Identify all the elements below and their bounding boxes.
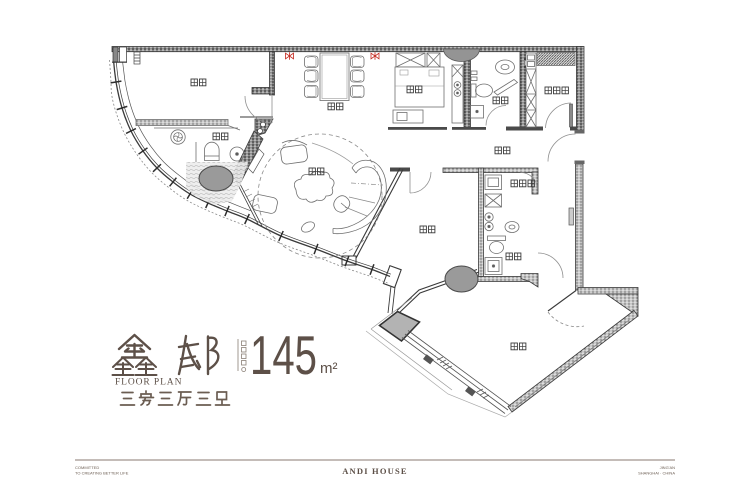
- svg-text:145: 145: [250, 324, 317, 386]
- svg-text:SHANGHAI · CHINA: SHANGHAI · CHINA: [638, 471, 675, 476]
- svg-text:FLOOR PLAN: FLOOR PLAN: [115, 378, 182, 388]
- svg-text:m²: m²: [320, 360, 338, 377]
- svg-text:COMMITTED: COMMITTED: [75, 465, 99, 470]
- svg-text:ANDI HOUSE: ANDI HOUSE: [342, 466, 408, 476]
- svg-text:JING'AN: JING'AN: [660, 465, 676, 470]
- svg-text:TO CREATING BETTER LIFE: TO CREATING BETTER LIFE: [75, 471, 129, 476]
